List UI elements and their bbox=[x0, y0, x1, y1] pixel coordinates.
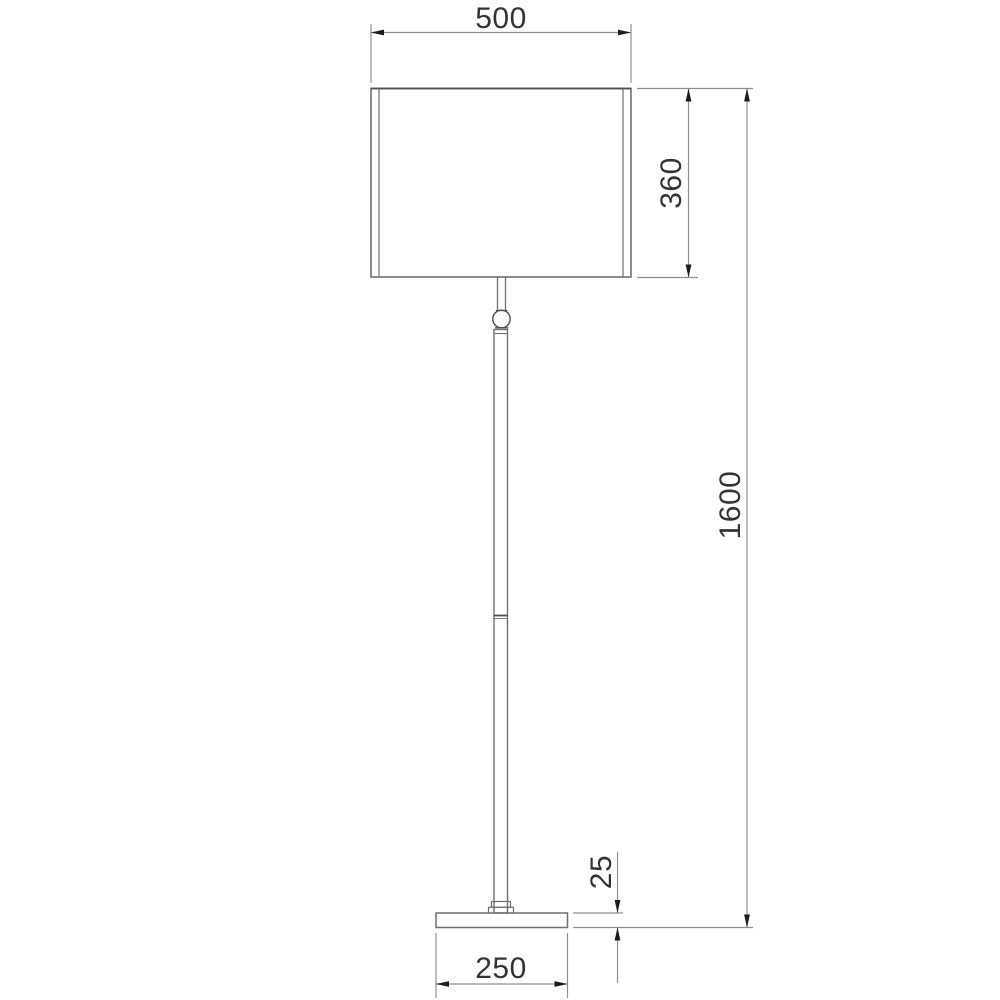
lamp-pole bbox=[494, 330, 508, 914]
dim-total-height: 1600 bbox=[714, 89, 750, 928]
dim-total-height-arrow-bottom bbox=[744, 915, 750, 928]
dim-base-width-arrow-left bbox=[436, 981, 449, 987]
dim-shade-width-arrow-left bbox=[371, 30, 384, 36]
dim-shade-width-arrow-right bbox=[618, 30, 631, 36]
dim-total-height-arrow-top bbox=[744, 89, 750, 102]
dim-shade-width: 500 bbox=[371, 2, 631, 83]
dim-shade-height: 360 bbox=[637, 89, 753, 278]
dim-base-height-arrow-top bbox=[615, 900, 621, 913]
dim-base-width-label: 250 bbox=[475, 952, 527, 985]
pole-foot-collar-lower bbox=[489, 907, 514, 913]
finial-connector bbox=[493, 310, 510, 328]
dim-base-height-label: 25 bbox=[585, 855, 618, 889]
drawing-canvas: 500 360 1600 25 bbox=[0, 0, 1000, 1000]
dim-shade-height-label: 360 bbox=[655, 157, 688, 209]
lamp-geometry bbox=[371, 89, 631, 928]
dim-base-height-arrow-bottom bbox=[615, 928, 621, 941]
floor-lamp-dimension-drawing: 500 360 1600 25 bbox=[0, 0, 1000, 1000]
dim-base-width: 250 bbox=[436, 933, 568, 998]
dim-base-width-arrow-right bbox=[555, 981, 568, 987]
lamp-shade bbox=[371, 89, 631, 278]
dim-shade-height-arrow-bottom bbox=[686, 265, 692, 278]
dim-total-height-label: 1600 bbox=[714, 471, 747, 540]
dim-base-height: 25 bbox=[573, 852, 753, 983]
dim-shade-width-label: 500 bbox=[475, 2, 527, 35]
dim-shade-height-arrow-top bbox=[686, 89, 692, 102]
base-plate bbox=[436, 913, 568, 928]
